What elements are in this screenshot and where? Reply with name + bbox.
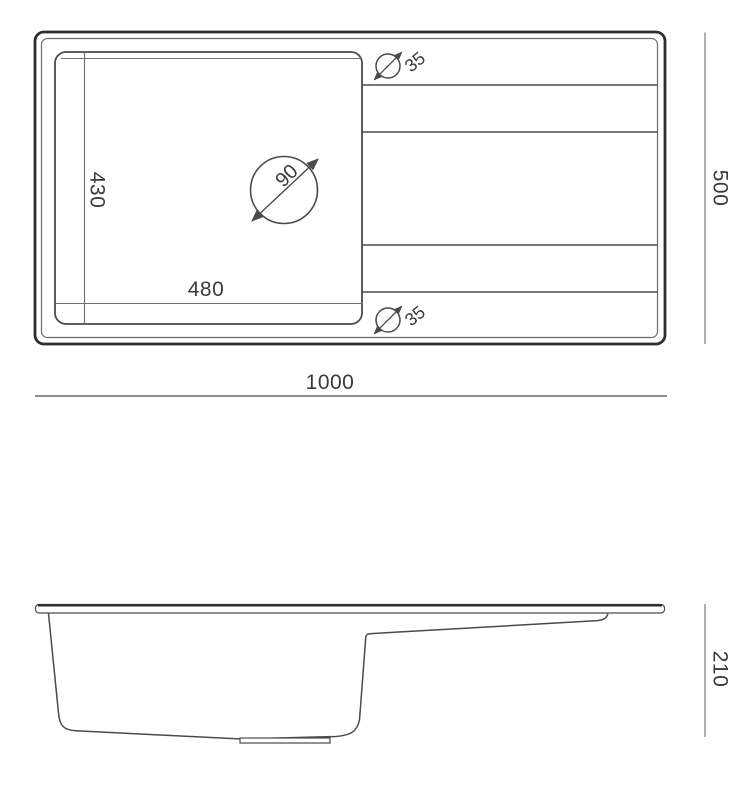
bowl-depth-label: 430 [86,172,109,209]
side-view: 210 [36,604,732,743]
bowl-width-label: 480 [188,278,225,301]
width-dimension-label: 1000 [306,371,355,394]
sink-technical-drawing: 90 35 35 430 480 1000 500 [0,0,755,800]
side-profile-outline [49,614,609,740]
depth-dimension-label: 500 [709,170,732,207]
top-view: 90 35 35 430 480 1000 500 [35,32,732,396]
drawing-canvas: 90 35 35 430 480 1000 500 [0,0,755,800]
drain-outlet [240,738,330,743]
height-dimension-label: 210 [709,651,732,688]
